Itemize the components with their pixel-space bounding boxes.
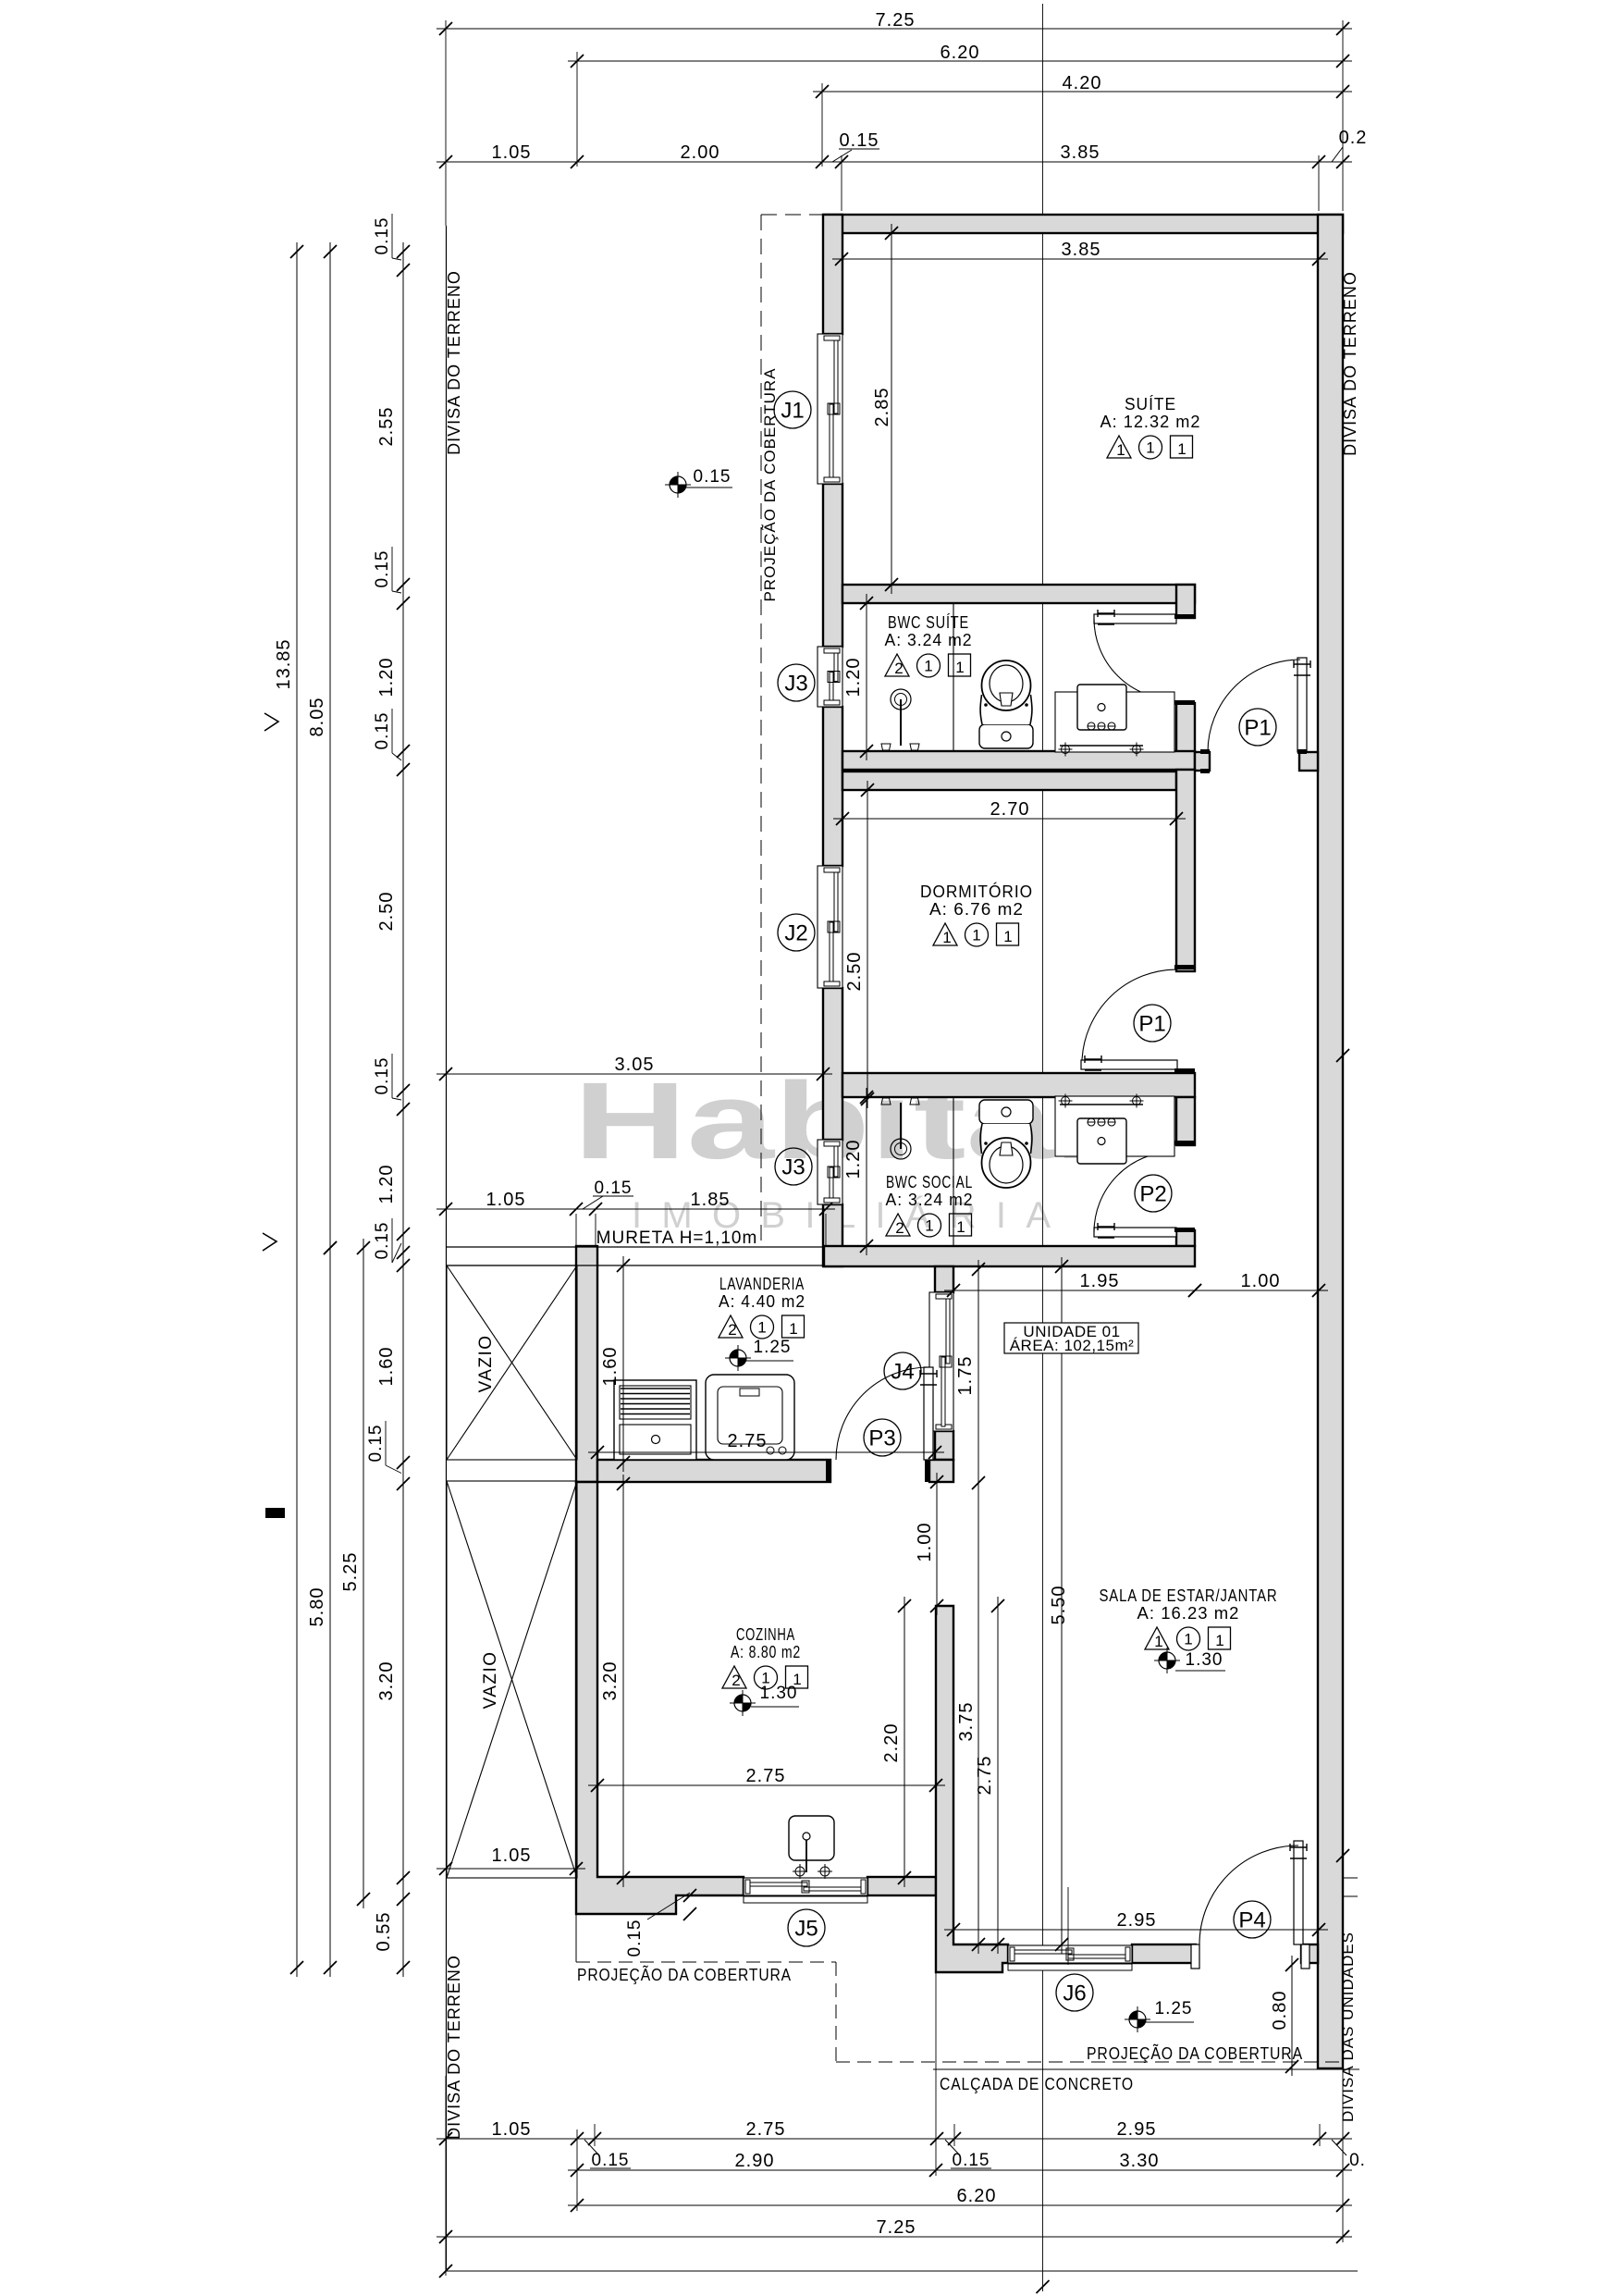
svg-text:0.55: 0.55 <box>374 1912 394 1952</box>
svg-text:A: 12.32 m2: A: 12.32 m2 <box>1100 413 1201 431</box>
svg-text:1.05: 1.05 <box>492 142 532 163</box>
svg-text:J4: J4 <box>891 1359 914 1384</box>
svg-text:A: 3.24 m2: A: 3.24 m2 <box>886 1191 974 1209</box>
svg-text:6.20: 6.20 <box>941 43 980 63</box>
svg-text:1: 1 <box>1116 441 1125 459</box>
svg-text:2: 2 <box>895 1219 904 1237</box>
svg-text:2.75: 2.75 <box>746 2119 786 2140</box>
svg-text:J3: J3 <box>781 1154 805 1179</box>
svg-text:1: 1 <box>1154 1633 1162 1650</box>
svg-text:3.85: 3.85 <box>1062 240 1101 260</box>
svg-text:0.15: 0.15 <box>366 1425 386 1463</box>
svg-text:2.75: 2.75 <box>975 1756 995 1796</box>
svg-text:1: 1 <box>1215 1632 1223 1649</box>
svg-text:2.00: 2.00 <box>681 142 720 163</box>
svg-text:1: 1 <box>1003 928 1012 945</box>
svg-text:BWC SOCIAL: BWC SOCIAL <box>886 1173 973 1191</box>
svg-text:SALA DE ESTAR/JANTAR: SALA DE ESTAR/JANTAR <box>1100 1586 1278 1605</box>
svg-text:1.85: 1.85 <box>691 1190 731 1210</box>
svg-text:2: 2 <box>732 1672 740 1689</box>
svg-text:0.15: 0.15 <box>625 1920 645 1957</box>
svg-text:2.55: 2.55 <box>376 407 397 447</box>
svg-text:DORMITÓRIO: DORMITÓRIO <box>920 882 1033 901</box>
svg-text:COZINHA: COZINHA <box>736 1625 795 1644</box>
svg-text:8.05: 8.05 <box>307 697 327 737</box>
svg-text:J2: J2 <box>784 920 807 945</box>
svg-text:0.15: 0.15 <box>373 217 392 255</box>
svg-text:A: 4.40 m2: A: 4.40 m2 <box>719 1292 805 1311</box>
svg-text:1.05: 1.05 <box>492 1845 532 1866</box>
svg-text:6.20: 6.20 <box>957 2186 997 2206</box>
svg-text:P1: P1 <box>1244 715 1271 740</box>
svg-text:0.15: 0.15 <box>840 130 879 151</box>
svg-text:DIVISA DAS UNIDADES: DIVISA DAS UNIDADES <box>1339 1932 1357 2122</box>
svg-text:SUÍTE: SUÍTE <box>1125 395 1176 414</box>
svg-text:VAZIO: VAZIO <box>481 1650 500 1709</box>
svg-text:1: 1 <box>924 658 932 675</box>
svg-text:1: 1 <box>789 1320 797 1338</box>
svg-text:2.75: 2.75 <box>746 1766 786 1786</box>
svg-text:PROJEÇÃO DA COBERTURA: PROJEÇÃO DA COBERTURA <box>1087 2043 1303 2063</box>
svg-text:1: 1 <box>925 1217 933 1235</box>
svg-text:A: 8.80 m2: A: 8.80 m2 <box>731 1643 801 1661</box>
svg-text:1: 1 <box>1177 440 1186 458</box>
svg-text:DIVISA DO TERRENO: DIVISA DO TERRENO <box>445 270 463 455</box>
svg-text:A: 16.23 m2: A: 16.23 m2 <box>1137 1604 1240 1623</box>
svg-text:1.60: 1.60 <box>600 1347 621 1387</box>
svg-text:4.20: 4.20 <box>1063 73 1102 93</box>
svg-text:1.05: 1.05 <box>492 2119 532 2140</box>
svg-text:1.20: 1.20 <box>376 658 397 697</box>
svg-text:3.20: 3.20 <box>376 1661 397 1701</box>
svg-text:0.: 0. <box>1349 2151 1366 2170</box>
svg-text:1.20: 1.20 <box>843 1140 864 1179</box>
svg-text:1.30: 1.30 <box>1186 1650 1223 1670</box>
svg-text:0.15: 0.15 <box>595 1179 633 1198</box>
svg-text:3.30: 3.30 <box>1120 2151 1160 2171</box>
svg-text:5.50: 5.50 <box>1049 1586 1069 1625</box>
svg-text:3.05: 3.05 <box>615 1055 655 1075</box>
svg-text:13.85: 13.85 <box>274 638 294 689</box>
svg-text:1.05: 1.05 <box>486 1190 526 1210</box>
svg-text:2.95: 2.95 <box>1117 1910 1157 1931</box>
svg-text:2: 2 <box>894 660 903 677</box>
svg-text:1.30: 1.30 <box>760 1684 798 1703</box>
svg-text:1: 1 <box>757 1319 766 1337</box>
svg-text:7.25: 7.25 <box>876 10 916 31</box>
svg-text:1.00: 1.00 <box>915 1523 935 1562</box>
svg-text:ÁREA: 102,15m²: ÁREA: 102,15m² <box>1010 1337 1135 1354</box>
svg-text:PROJEÇÃO DA COBERTURA: PROJEÇÃO DA COBERTURA <box>577 1965 792 1984</box>
svg-text:7.25: 7.25 <box>877 2217 916 2238</box>
svg-text:3.85: 3.85 <box>1061 142 1100 163</box>
svg-text:1: 1 <box>1146 439 1154 457</box>
svg-text:1: 1 <box>955 659 964 676</box>
svg-text:5.25: 5.25 <box>340 1552 361 1592</box>
svg-text:2.50: 2.50 <box>376 892 397 932</box>
svg-text:LAVANDERIA: LAVANDERIA <box>719 1275 805 1293</box>
svg-text:0.15: 0.15 <box>373 712 392 750</box>
svg-text:DIVISA DO TERRENO: DIVISA DO TERRENO <box>1341 271 1359 456</box>
svg-text:J5: J5 <box>794 1916 818 1941</box>
svg-text:1.25: 1.25 <box>754 1338 792 1357</box>
svg-text:DIVISA DO TERRENO: DIVISA DO TERRENO <box>445 1955 463 2140</box>
svg-text:A: 3.24 m2: A: 3.24 m2 <box>885 631 973 649</box>
svg-text:1: 1 <box>972 927 980 944</box>
svg-text:P3: P3 <box>868 1426 895 1450</box>
svg-text:2.20: 2.20 <box>881 1723 902 1763</box>
svg-text:2.85: 2.85 <box>872 388 892 427</box>
svg-text:1.95: 1.95 <box>1080 1271 1120 1291</box>
svg-text:5.80: 5.80 <box>307 1587 327 1627</box>
svg-text:1: 1 <box>956 1218 965 1236</box>
svg-text:1: 1 <box>942 929 951 946</box>
svg-text:1: 1 <box>1184 1631 1192 1648</box>
svg-text:J1: J1 <box>781 398 804 423</box>
svg-text:0.15: 0.15 <box>694 467 732 487</box>
svg-text:J3: J3 <box>784 671 807 696</box>
svg-text:BWC SUÍTE: BWC SUÍTE <box>888 613 969 632</box>
svg-text:1.60: 1.60 <box>376 1347 397 1387</box>
svg-text:1.00: 1.00 <box>1241 1271 1281 1291</box>
svg-text:VAZIO: VAZIO <box>476 1334 496 1392</box>
svg-text:1.20: 1.20 <box>376 1165 397 1204</box>
svg-text:1.20: 1.20 <box>843 658 864 697</box>
svg-text:2.70: 2.70 <box>990 799 1030 820</box>
svg-text:P1: P1 <box>1138 1011 1165 1036</box>
svg-text:P2: P2 <box>1139 1181 1166 1206</box>
svg-text:0.15: 0.15 <box>373 550 392 588</box>
svg-text:MURETA H=1,10m: MURETA H=1,10m <box>596 1228 758 1248</box>
svg-text:2.95: 2.95 <box>1117 2119 1157 2140</box>
svg-text:1.25: 1.25 <box>1155 1999 1193 2018</box>
svg-text:0.15: 0.15 <box>373 1057 392 1095</box>
svg-text:3.75: 3.75 <box>956 1702 977 1742</box>
svg-text:2.75: 2.75 <box>728 1431 768 1451</box>
svg-text:2.50: 2.50 <box>844 952 865 992</box>
svg-text:3.20: 3.20 <box>600 1661 621 1701</box>
svg-text:A: 6.76 m2: A: 6.76 m2 <box>929 900 1024 919</box>
svg-text:2.90: 2.90 <box>735 2151 775 2171</box>
svg-text:P4: P4 <box>1238 1907 1265 1932</box>
svg-text:CALÇADA DE CONCRETO: CALÇADA DE CONCRETO <box>940 2075 1134 2093</box>
svg-text:0.15: 0.15 <box>373 1222 392 1260</box>
svg-text:2: 2 <box>728 1321 736 1339</box>
svg-text:0.80: 0.80 <box>1270 1991 1290 2031</box>
svg-text:1.75: 1.75 <box>955 1356 976 1396</box>
svg-text:J6: J6 <box>1063 1981 1086 2006</box>
